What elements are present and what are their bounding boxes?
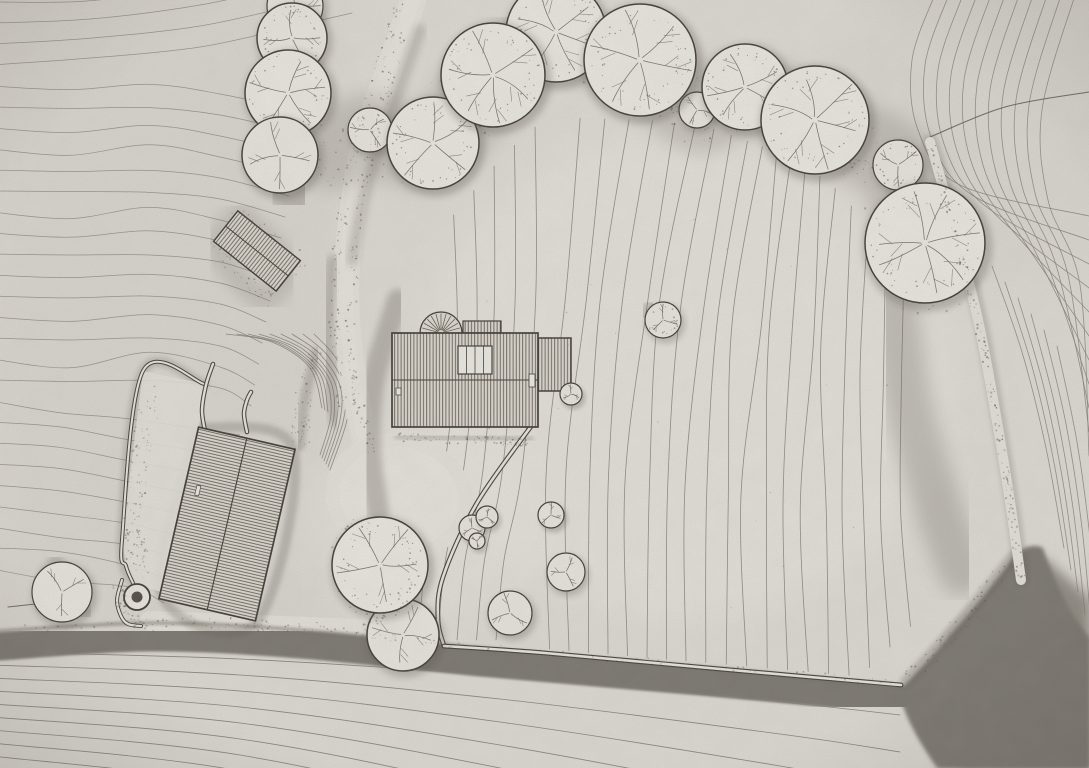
texture-layer xyxy=(0,0,1089,768)
site-plan xyxy=(0,0,1089,768)
site-plan-drawing xyxy=(0,0,1089,768)
